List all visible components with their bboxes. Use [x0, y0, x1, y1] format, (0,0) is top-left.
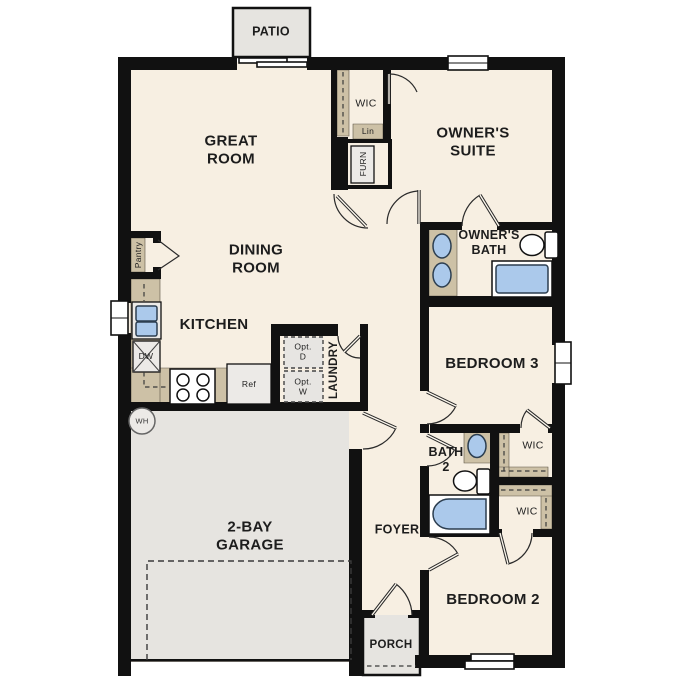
- bath2-label: BATH 2: [429, 445, 464, 476]
- porch-label: PORCH: [369, 638, 412, 652]
- dining-room-label: DINING ROOM: [229, 242, 283, 279]
- pantry-label: Pantry: [133, 242, 143, 268]
- bath2-sink: [468, 435, 486, 458]
- floor-plan: PATIO GREAT ROOM WIC Lin FURN OWNER'S SU…: [0, 0, 687, 687]
- bedroom3-label: BEDROOM 3: [445, 355, 539, 373]
- owners-bath-sink-1: [433, 234, 451, 258]
- burner-icon: [177, 374, 189, 386]
- bedroom2-label: BEDROOM 2: [446, 591, 540, 609]
- furnace-label: FURN: [358, 152, 368, 177]
- bath2-toilet-tank: [477, 469, 490, 494]
- bedroom3-wic-label: WIC: [522, 440, 543, 453]
- burner-icon: [177, 389, 189, 401]
- owners-toilet-bowl: [520, 235, 544, 256]
- kitchen-sink-basin-2: [136, 322, 157, 336]
- opt-washer-label: Opt. W: [294, 377, 311, 398]
- bedroom2-wic-label: WIC: [516, 506, 537, 519]
- window-bedroom2-lower: [465, 661, 514, 669]
- window-bedroom2-upper: [471, 654, 514, 661]
- owners-suite-label: OWNER'S SUITE: [436, 125, 509, 162]
- burner-icon: [197, 389, 209, 401]
- refrigerator-label: Ref: [242, 379, 256, 389]
- kitchen-sink-basin-1: [136, 306, 157, 321]
- owners-bath-sink-2: [433, 263, 451, 287]
- patio-label: PATIO: [252, 24, 290, 39]
- owners-bath-label: OWNER'S BATH: [458, 228, 519, 259]
- laundry-label: LAUNDRY: [327, 341, 341, 399]
- bath2-tub: [433, 499, 486, 529]
- kitchen-label: KITCHEN: [180, 316, 249, 334]
- owners-toilet-tank: [545, 232, 558, 258]
- burner-icon: [197, 374, 209, 386]
- foyer-label: FOYER: [375, 522, 420, 537]
- dishwasher-label: DW: [139, 351, 154, 361]
- water-heater-label: WH: [135, 416, 148, 425]
- patio-slider-panel-2: [257, 62, 307, 67]
- owners-bath-tub: [496, 265, 548, 293]
- linen-label: Lin: [362, 126, 374, 136]
- owners-wic-label: WIC: [355, 98, 376, 111]
- garage-label: 2-BAY GARAGE: [216, 519, 284, 556]
- floor-plan-svg: [0, 0, 687, 687]
- opt-dryer-label: Opt. D: [294, 342, 311, 363]
- great-room-label: GREAT ROOM: [205, 133, 258, 170]
